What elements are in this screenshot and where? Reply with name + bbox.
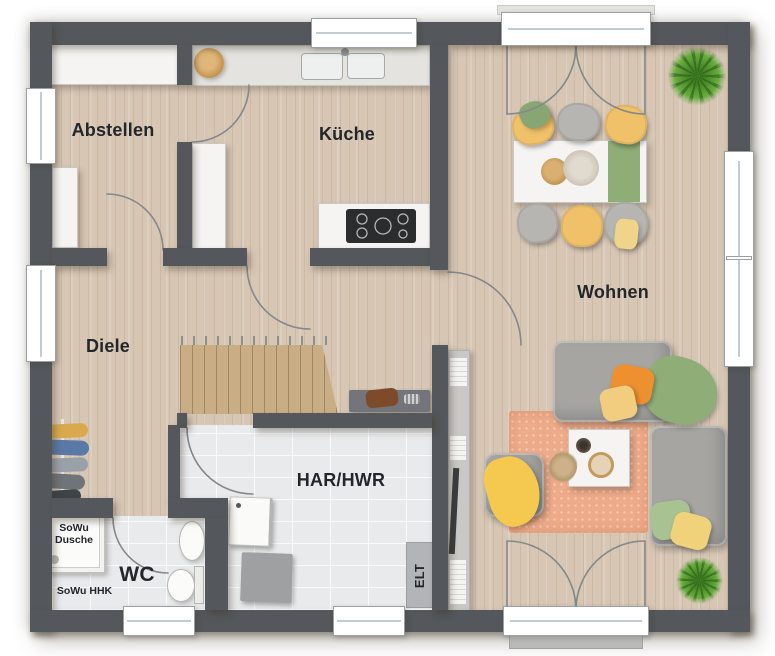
window bbox=[333, 606, 405, 636]
vase bbox=[576, 438, 591, 453]
wall-har-left bbox=[168, 425, 180, 500]
window bbox=[123, 606, 195, 636]
open-door-leaf bbox=[192, 143, 226, 250]
wall-diele-har bbox=[253, 413, 432, 428]
bag bbox=[365, 387, 399, 408]
stair-handrail bbox=[181, 336, 331, 345]
room-label-wohnen: Wohnen bbox=[553, 283, 673, 303]
dining-chair bbox=[560, 204, 603, 247]
room-label-har-hwr: HAR/HWR bbox=[261, 471, 421, 491]
chair-towel bbox=[613, 218, 639, 250]
shower-label: SoWu Dusche bbox=[50, 523, 98, 546]
wall-wc-top bbox=[52, 498, 113, 518]
dried-flowers bbox=[563, 150, 599, 186]
potted-plant bbox=[668, 46, 726, 106]
keys bbox=[404, 394, 420, 404]
storage-cabinet-top bbox=[40, 42, 178, 85]
window-mullion bbox=[726, 256, 752, 260]
elt-label: ELT bbox=[413, 546, 427, 606]
kitchen-sink-basin bbox=[347, 53, 385, 79]
room-label-wc: WC bbox=[97, 563, 177, 586]
french-door bbox=[503, 606, 649, 636]
room-label-abstellen: Abstellen bbox=[53, 121, 173, 141]
kitchen-sink-basin bbox=[301, 53, 343, 80]
books bbox=[450, 560, 466, 604]
deco-bowl bbox=[194, 48, 224, 78]
appliance-box bbox=[240, 552, 293, 603]
wall-kueche-diele bbox=[163, 248, 247, 266]
dining-chair bbox=[556, 102, 601, 142]
wall-kueche-diele bbox=[310, 248, 430, 266]
staircase bbox=[180, 345, 338, 414]
wall-wc-har bbox=[205, 518, 228, 610]
table-runner bbox=[608, 141, 640, 202]
books bbox=[450, 358, 467, 386]
wall-kueche-wohnen bbox=[430, 45, 448, 270]
wall-abstellen-kueche bbox=[177, 142, 192, 250]
room-label-kueche: Küche bbox=[287, 125, 407, 145]
washing-machine bbox=[228, 496, 273, 546]
elt-panel: ELT bbox=[406, 542, 433, 608]
cooktop bbox=[346, 209, 416, 243]
wc-sink bbox=[179, 521, 205, 561]
storage-cabinet-left bbox=[52, 167, 78, 248]
wall-abstellen-kueche bbox=[177, 45, 192, 85]
floor-plan: ELT SoWu Dusche bbox=[0, 0, 775, 656]
potted-plant bbox=[676, 557, 723, 604]
window bbox=[26, 88, 56, 164]
faucet bbox=[341, 48, 349, 56]
entrance-step bbox=[509, 634, 643, 649]
french-door bbox=[501, 12, 651, 46]
room-label-diele: Diele bbox=[48, 337, 168, 357]
washer-knob bbox=[236, 503, 241, 508]
annotation-hhk: SoWu HHK bbox=[42, 586, 127, 598]
wall-wc-top bbox=[168, 498, 228, 518]
books bbox=[450, 436, 466, 460]
wall-diele-wohnen bbox=[432, 345, 448, 610]
wall-abstellen-diele bbox=[52, 248, 107, 266]
tray bbox=[588, 452, 614, 478]
window bbox=[311, 18, 417, 48]
toilet-tank bbox=[194, 566, 204, 604]
